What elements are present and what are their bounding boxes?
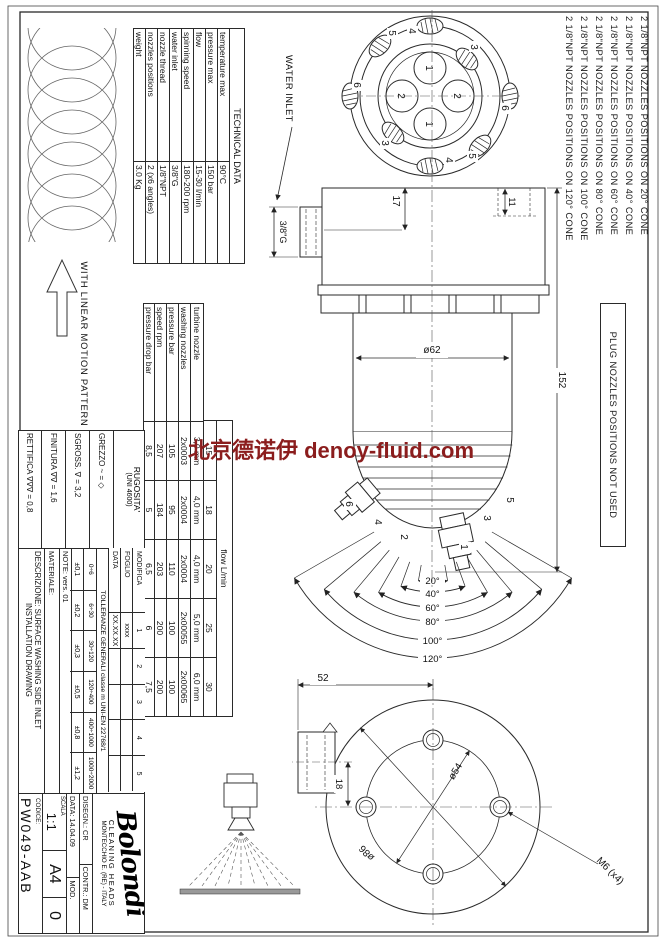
tt-cell: 7,5 <box>144 657 155 716</box>
pos-label-3: 3 <box>379 140 390 146</box>
tt-cell: 203 <box>155 539 167 598</box>
flow-value: 25 <box>203 598 217 657</box>
ray-label-4: 4 <box>372 519 383 525</box>
tt-cell: 6,5 <box>144 539 155 598</box>
note-line: 2 1/8"NPT NOZZLES POSITIONS ON 120° CONE <box>559 16 574 241</box>
dim-18: 18 <box>333 779 344 790</box>
maker-section: Bolondi CLEANING HEADS MONTECCHIO E. (RE… <box>19 793 144 933</box>
disegn-row: DISEGN.: CR CONTR.: DM <box>80 794 93 933</box>
ray-label-3: 3 <box>481 515 492 521</box>
pos-label-6: 6 <box>351 82 362 88</box>
title-block: RUGOSITA' (UNI 4600) GREZZO ~ = ◇ SGROSS… <box>18 430 145 934</box>
foglio-value: xxxx <box>121 612 133 648</box>
motion-arrow-icon <box>47 260 77 336</box>
ray-label-1: 1 <box>458 544 469 550</box>
modifica-table: MODIFICA 1 2 3 4 5 FOGLIO xxxx DATA XX.X… <box>108 548 145 792</box>
codice-label: CODICE: <box>34 798 41 929</box>
water-inlet-port <box>300 207 322 257</box>
pos-label-4: 4 <box>406 28 417 34</box>
pos-label-6: 6 <box>499 105 510 111</box>
td-value: 180-200 rpm <box>182 161 194 263</box>
tt-cell: 184 <box>155 480 167 539</box>
pos-label-5: 5 <box>386 30 397 36</box>
modifica-col: 2 <box>133 648 145 684</box>
tt-row-label: pressure drop bar <box>144 304 155 421</box>
pattern-label: WITH LINEAR MOTION PATTERN <box>79 261 89 426</box>
td-label: spinning speed <box>182 29 194 161</box>
descrizione-row: DESCRIZIONE: SURFACE WASHING SIDE INLET … <box>19 549 45 793</box>
spray-lines <box>189 832 294 886</box>
tt-cell: 4,0 mm <box>191 539 203 598</box>
tt-cell: 6 <box>144 598 155 657</box>
td-value: 1/8"NPT <box>158 161 170 263</box>
pos-label-1: 1 <box>423 65 434 71</box>
tol-range: 1000÷2000 <box>84 752 96 793</box>
td-value: 2 (x6 angles) <box>146 161 158 263</box>
washed-surface <box>180 889 300 894</box>
dim-54: ø54 <box>447 761 466 782</box>
scala-label: SCALA <box>59 796 65 848</box>
td-value: 3.0 Kg <box>134 161 146 263</box>
rugosita-subtitle: (UNI 4600) <box>125 431 132 548</box>
td-value: 15-30 l/min <box>194 161 206 263</box>
tol-range: 30÷120 <box>84 630 96 671</box>
scala-cell: SCALA 1:1 <box>43 794 66 850</box>
td-label: nozzle thread <box>158 29 170 161</box>
pos-label-3: 3 <box>468 44 479 50</box>
cone-label-40: 40° <box>425 589 440 600</box>
note-row: NOTE: vers. 01 <box>60 549 72 793</box>
tt-cell: 4,0 mm <box>191 480 203 539</box>
td-label: nozzles positions <box>146 29 158 161</box>
dim-152: 152 <box>556 372 567 389</box>
cone-label-80: 80° <box>425 617 440 628</box>
bottom-view <box>292 679 598 926</box>
flow-value: 18 <box>203 480 217 539</box>
cone-notes-list: 2 1/8"NPT NOZZLES POSITIONS ON 20° CONE … <box>559 16 649 241</box>
td-label: pressure max <box>206 29 218 161</box>
contr-cell: CONTR.: DM <box>80 864 92 934</box>
modifica-col: 5 <box>133 755 145 791</box>
date-cell: DATA: 14.04.09 <box>67 794 79 877</box>
data-label: DATA <box>109 548 121 612</box>
tt-cell: 2x00055 <box>179 598 191 657</box>
note-line: 2 1/8"NPT NOZZLES POSITIONS ON 40° CONE <box>619 16 634 241</box>
descrizione-line1: DESCRIZIONE: SURFACE WASHING SIDE INLET <box>33 551 42 791</box>
tol-range: 6÷30 <box>84 590 96 631</box>
tt-cell: 100 <box>167 657 179 716</box>
technical-data-table: TECHNICAL DATA temperature max90°C press… <box>133 28 245 264</box>
descrizione-line2: INSTALLATION DRAWING <box>24 551 33 791</box>
td-value: 3/8"G <box>170 161 182 263</box>
tt-cell: 2x0004 <box>179 480 191 539</box>
watermark: 北京德诺伊 denoy-fluid.com <box>188 433 462 463</box>
dim-11: 11 <box>507 197 517 206</box>
tt-cell: 2x0004 <box>179 539 191 598</box>
note-line: 2 1/8"NPT NOZZLES POSITIONS ON 80° CONE <box>589 16 604 241</box>
tt-row-label: speed rpm <box>155 304 167 421</box>
spray-pictogram <box>180 774 300 894</box>
pos-label-5: 5 <box>466 153 477 159</box>
technical-data-title: TECHNICAL DATA <box>230 29 244 263</box>
pos-label-1: 1 <box>423 121 434 127</box>
cone-label-120: 120° <box>423 654 443 665</box>
ray-label-6: 6 <box>343 501 354 507</box>
pos-label-4: 4 <box>443 157 454 163</box>
tt-row-label: turbine nozzle <box>191 304 203 421</box>
plugged-nozzle-4b <box>417 158 443 174</box>
tolleranze-ranges: 0÷6 6÷30 30÷120 120÷400 400÷1000 1000÷20… <box>84 549 97 793</box>
disegn-cell: DISEGN.: CR <box>80 794 92 864</box>
landscape-drawing: 1 1 2 2 3 3 4 4 5 5 6 6 <box>0 0 666 942</box>
cleaning-pattern <box>28 0 116 294</box>
plug-note-box: PLUG NOZZLES POSITIONS NOT USED <box>600 303 626 547</box>
td-label: weight <box>134 29 146 161</box>
dim-inlet-thread: 3/8"G <box>278 221 288 244</box>
mod-label-cell: MOD. <box>67 877 79 933</box>
data-row: DATA: 14.04.09 MOD. <box>67 794 80 933</box>
rugosita-title: RUGOSITA' <box>132 431 142 548</box>
td-label: water inlet <box>170 29 182 161</box>
tt-cell: 110 <box>167 539 179 598</box>
pos-label-2: 2 <box>395 93 406 99</box>
td-label: flow <box>194 29 206 161</box>
rugosita-row: SGROSS. ∇ = 3,2 <box>66 431 90 548</box>
dim-62: ø62 <box>423 345 441 356</box>
dim-m6: M6 (x4) <box>594 855 626 887</box>
tt-cell: 5 <box>144 480 155 539</box>
tt-cell: 100 <box>167 598 179 657</box>
dim-52: 52 <box>317 673 329 684</box>
tt-cell: 8,5 <box>144 421 155 480</box>
tt-cell: 5,0 mm <box>191 598 203 657</box>
roughness-section: RUGOSITA' (UNI 4600) GREZZO ~ = ◇ SGROSS… <box>19 431 144 549</box>
side-inlet-port <box>298 732 335 793</box>
tt-cell: 105 <box>167 421 179 480</box>
rugosita-row: FINITURA ∇∇ = 1,6 <box>42 431 66 548</box>
tol-range: 0÷6 <box>84 549 96 590</box>
note-line: 2 1/8"NPT NOZZLES POSITIONS ON 20° CONE <box>634 16 649 241</box>
scala-row: SCALA 1:1 A4 0 <box>43 794 67 933</box>
data-value: XX.XX.XX <box>109 612 121 648</box>
modifica-col: 1 <box>133 612 145 648</box>
flow-value: 20 <box>203 539 217 598</box>
flow-header-table: flow L/min 15 18 20 25 30 <box>202 420 233 717</box>
water-inlet-label: WATER INLET <box>284 55 294 122</box>
tt-cell: 200 <box>155 657 167 716</box>
format-cell: A4 <box>43 850 66 898</box>
flow-value: 30 <box>203 657 217 716</box>
tt-cell: 6,0 mm <box>191 657 203 716</box>
middle-section: MODIFICA 1 2 3 4 5 FOGLIO xxxx DATA XX.X… <box>19 549 144 793</box>
codice-value: PW049-AAB <box>19 798 34 929</box>
plugged-nozzle-4a <box>417 18 443 34</box>
modifica-header: MODIFICA <box>133 548 145 612</box>
foglio-label: FOGLIO <box>121 548 133 612</box>
tt-cell: 200 <box>155 598 167 657</box>
cone-angle-labels: 20° 40° 60° 80° 100° 120° <box>418 575 447 666</box>
flow-label: flow L/min <box>217 421 232 716</box>
td-value: 90°C <box>218 161 230 263</box>
pos-label-2: 2 <box>451 93 462 99</box>
tol-range: 400÷1000 <box>84 712 96 753</box>
tolleranze-title: TOLLERANZE GENERALI classe m UNI-EN 2276… <box>97 549 108 793</box>
tt-cell: 95 <box>167 480 179 539</box>
turbine-nozzle-table: turbine nozzle 3,0 mm 4,0 mm 4,0 mm 5,0 … <box>143 303 204 717</box>
codice-row: CODICE: PW049-AAB <box>19 794 43 933</box>
note-line: 2 1/8"NPT NOZZLES POSITIONS ON 60° CONE <box>604 16 619 241</box>
top-view <box>340 16 520 176</box>
cone-label-100: 100° <box>423 636 443 647</box>
cone-label-20: 20° <box>425 576 440 587</box>
ray-label-5: 5 <box>504 497 515 503</box>
dim-17: 17 <box>390 195 401 207</box>
logo-address: MONTECCHIO E. (RE) - ITALY <box>100 794 107 933</box>
ray-label-2: 2 <box>398 534 409 540</box>
mod-value-cell: 0 <box>43 897 66 933</box>
drawing-sheet: 1 1 2 2 3 3 4 4 5 5 6 6 <box>0 0 666 942</box>
tol-range: 120÷400 <box>84 671 96 712</box>
note-line: 2 1/8"NPT NOZZLES POSITIONS ON 100° CONE <box>574 16 589 241</box>
td-value: 150 bar <box>206 161 218 263</box>
td-label: temperature max <box>218 29 230 161</box>
tt-row-label: pressure bar <box>167 304 179 421</box>
materiale-row: MATERIALE: <box>45 549 60 793</box>
scala-value: 1:1 <box>44 796 59 848</box>
tt-cell: 2x00065 <box>179 657 191 716</box>
rugosita-row: RETTIFICA ∇∇∇ = 0,8 <box>18 431 42 548</box>
modifica-col: 3 <box>133 684 145 720</box>
tt-cell: 207 <box>155 421 167 480</box>
dim-86: ø86 <box>357 842 377 862</box>
cone-label-60: 60° <box>425 603 440 614</box>
bottom-view-dim-labels: ø54 ø86 M6 (x4) 52 18 <box>310 672 626 887</box>
rugosita-row: GREZZO ~ = ◇ <box>90 431 114 548</box>
nozzle-position-1 <box>436 512 479 572</box>
tt-row-label: washing nozzles <box>179 304 191 421</box>
modifica-col: 4 <box>133 719 145 755</box>
tolleranze-values: ±0,1 ±0,2 ±0,3 ±0,5 ±0,8 ±1,2 <box>70 549 84 793</box>
